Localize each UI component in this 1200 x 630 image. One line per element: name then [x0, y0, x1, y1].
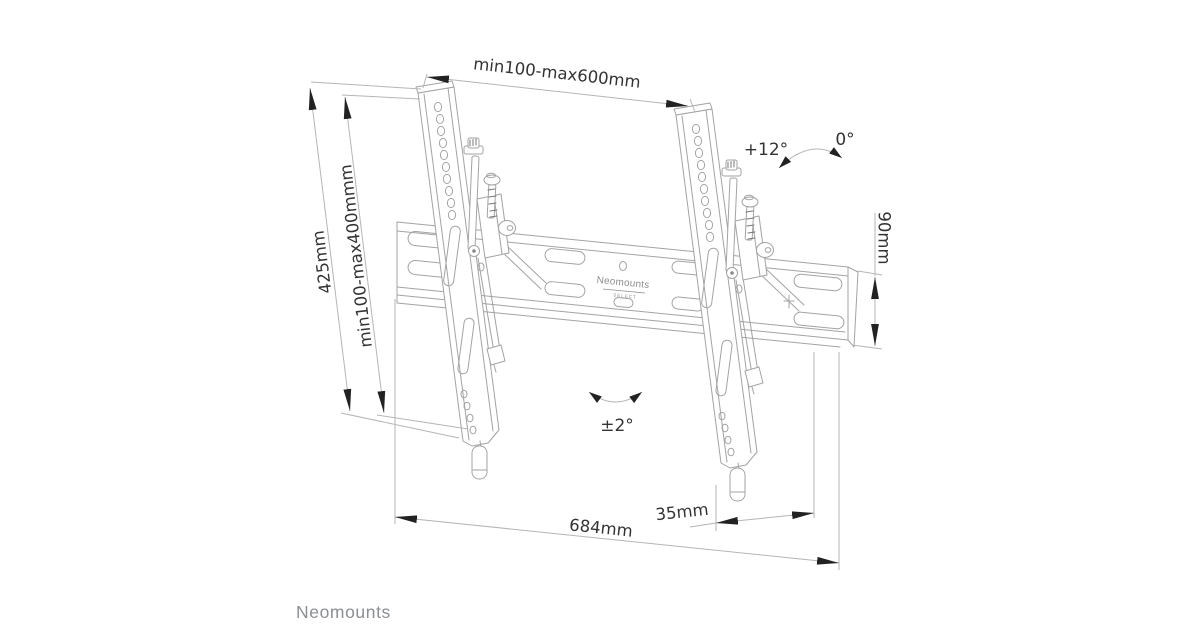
dimension-label-wall-depth: 35mm — [655, 500, 710, 524]
dimension-label-bracket-height: 425mm — [309, 229, 336, 295]
level-correction-label: ±2° — [600, 416, 634, 436]
mount-diagram: Neomounts SELECT min100-max600mm 425mm m… — [0, 0, 1200, 630]
dimension-label-total-width: 684mm — [568, 515, 633, 540]
annotation-level-correction: ±2° — [589, 392, 642, 436]
dimension-top-width: min100-max600mm — [311, 54, 695, 112]
dimension-label-vesa-height: min100-max400mmm — [336, 163, 376, 348]
dimension-rail-height: 90mm — [852, 211, 894, 349]
tilt-zero-label: 0° — [835, 130, 854, 150]
annotation-tilt-angle: +12° 0° — [744, 130, 855, 168]
dimension-label-rail-height: 90mm — [875, 211, 894, 264]
tilt-max-label: +12° — [744, 140, 788, 160]
product-dimension-diagram: Neomounts SELECT min100-max600mm 425mm m… — [0, 0, 1200, 630]
dimension-label-top-width: min100-max600mm — [472, 54, 641, 92]
footer-brand-text: Neomounts — [296, 602, 391, 622]
